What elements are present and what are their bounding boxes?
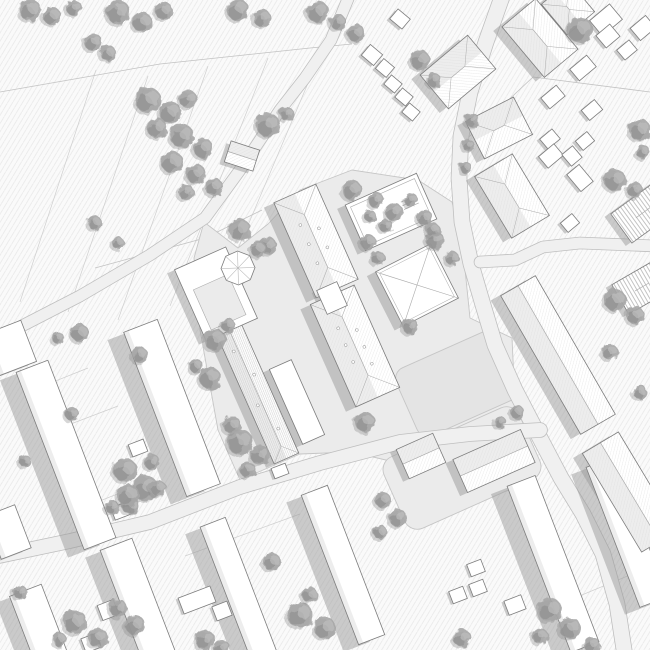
site-plan — [0, 0, 650, 650]
site-plan-svg — [0, 0, 650, 650]
